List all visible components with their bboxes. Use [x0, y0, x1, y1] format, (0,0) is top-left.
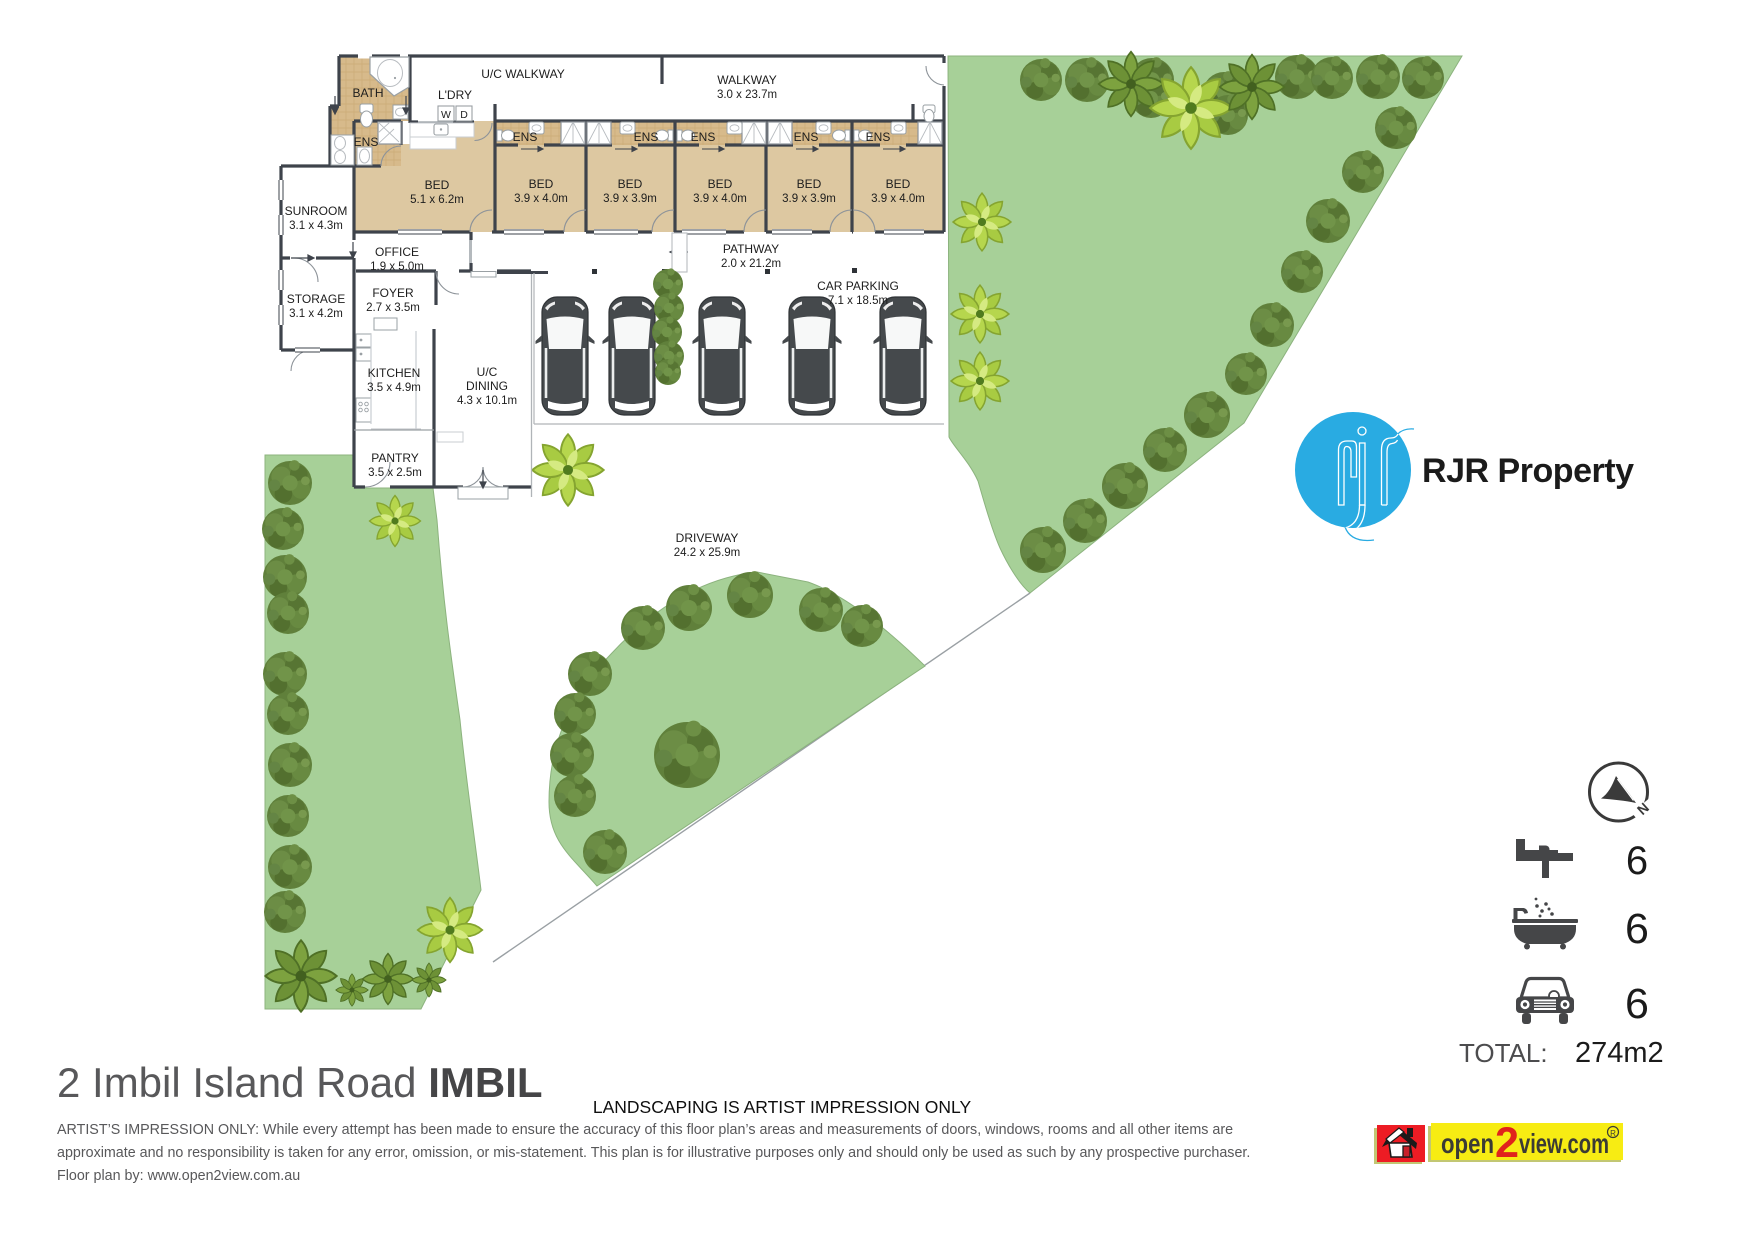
svg-text:3.1 x 4.2m: 3.1 x 4.2m	[289, 308, 343, 320]
svg-text:BED: BED	[886, 177, 911, 191]
svg-text:3.9 x 4.0m: 3.9 x 4.0m	[871, 193, 925, 205]
svg-text:PATHWAY: PATHWAY	[723, 242, 779, 256]
svg-text:7.1 x 18.5m: 7.1 x 18.5m	[828, 295, 888, 307]
svg-text:RJR Property: RJR Property	[1422, 452, 1634, 490]
svg-text:24.2 x 25.9m: 24.2 x 25.9m	[674, 547, 740, 559]
svg-text:ENS: ENS	[866, 130, 891, 144]
svg-text:U/C WALKWAY: U/C WALKWAY	[481, 67, 565, 81]
svg-text:3.5 x 4.9m: 3.5 x 4.9m	[367, 382, 421, 394]
svg-text:2.0 x 21.2m: 2.0 x 21.2m	[721, 258, 781, 270]
svg-text:BED: BED	[529, 177, 554, 191]
svg-text:approximate and no responsibil: approximate and no responsibility is tak…	[57, 1145, 1250, 1161]
svg-text:6: 6	[1626, 839, 1648, 883]
svg-text:BED: BED	[425, 178, 450, 192]
svg-text:1.9 x 5.0m: 1.9 x 5.0m	[370, 261, 424, 273]
svg-text:DINING: DINING	[466, 379, 508, 393]
svg-text:OFFICE: OFFICE	[375, 245, 419, 259]
svg-text:view.com: view.com	[1519, 1128, 1609, 1159]
svg-text:KITCHEN: KITCHEN	[368, 366, 421, 380]
svg-text:3.1 x 4.3m: 3.1 x 4.3m	[289, 220, 343, 232]
svg-text:L'DRY: L'DRY	[438, 88, 472, 102]
svg-text:6: 6	[1625, 905, 1649, 953]
svg-text:4.3 x 10.1m: 4.3 x 10.1m	[457, 395, 517, 407]
svg-text:SUNROOM: SUNROOM	[285, 204, 348, 218]
svg-text:ENS: ENS	[794, 130, 819, 144]
svg-text:WALKWAY: WALKWAY	[717, 73, 777, 87]
svg-text:3.9 x 3.9m: 3.9 x 3.9m	[603, 193, 657, 205]
svg-text:BATH: BATH	[352, 86, 383, 100]
svg-text:BED: BED	[618, 177, 643, 191]
svg-text:DRIVEWAY: DRIVEWAY	[676, 531, 739, 545]
svg-text:2 Imbil Island Road IMBIL: 2 Imbil Island Road IMBIL	[57, 1059, 543, 1106]
svg-text:open: open	[1441, 1128, 1494, 1159]
svg-text:W: W	[441, 109, 451, 121]
svg-text:3.9 x 3.9m: 3.9 x 3.9m	[782, 193, 836, 205]
svg-text:2: 2	[1495, 1119, 1519, 1167]
svg-text:ARTIST’S IMPRESSION ONLY: Whil: ARTIST’S IMPRESSION ONLY: While every at…	[57, 1122, 1233, 1138]
svg-text:TOTAL:: TOTAL:	[1459, 1038, 1548, 1068]
svg-text:Floor plan by: www.open2view.c: Floor plan by: www.open2view.com.au	[57, 1168, 300, 1184]
svg-text:D: D	[460, 109, 468, 121]
svg-text:3.9 x 4.0m: 3.9 x 4.0m	[693, 193, 747, 205]
svg-text:FOYER: FOYER	[372, 286, 414, 300]
svg-text:LANDSCAPING IS ARTIST IMPRESSI: LANDSCAPING IS ARTIST IMPRESSION ONLY	[593, 1097, 972, 1117]
svg-text:ENS: ENS	[354, 135, 379, 149]
svg-text:PANTRY: PANTRY	[371, 451, 419, 465]
svg-text:ENS: ENS	[634, 130, 659, 144]
svg-text:2.7 x 3.5m: 2.7 x 3.5m	[366, 302, 420, 314]
svg-text:ENS: ENS	[513, 130, 538, 144]
svg-text:STORAGE: STORAGE	[287, 292, 345, 306]
svg-text:6: 6	[1625, 980, 1649, 1028]
svg-text:3.9 x 4.0m: 3.9 x 4.0m	[514, 193, 568, 205]
svg-text:ENS: ENS	[691, 130, 716, 144]
svg-text:5.1 x 6.2m: 5.1 x 6.2m	[410, 194, 464, 206]
svg-text:274m2: 274m2	[1575, 1037, 1664, 1069]
svg-text:BED: BED	[708, 177, 733, 191]
svg-text:R: R	[1610, 1129, 1616, 1138]
svg-text:BED: BED	[797, 177, 822, 191]
svg-text:3.5 x 2.5m: 3.5 x 2.5m	[368, 467, 422, 479]
svg-text:CAR PARKING: CAR PARKING	[817, 279, 899, 293]
svg-text:U/C: U/C	[477, 365, 498, 379]
svg-text:3.0 x 23.7m: 3.0 x 23.7m	[717, 89, 777, 101]
